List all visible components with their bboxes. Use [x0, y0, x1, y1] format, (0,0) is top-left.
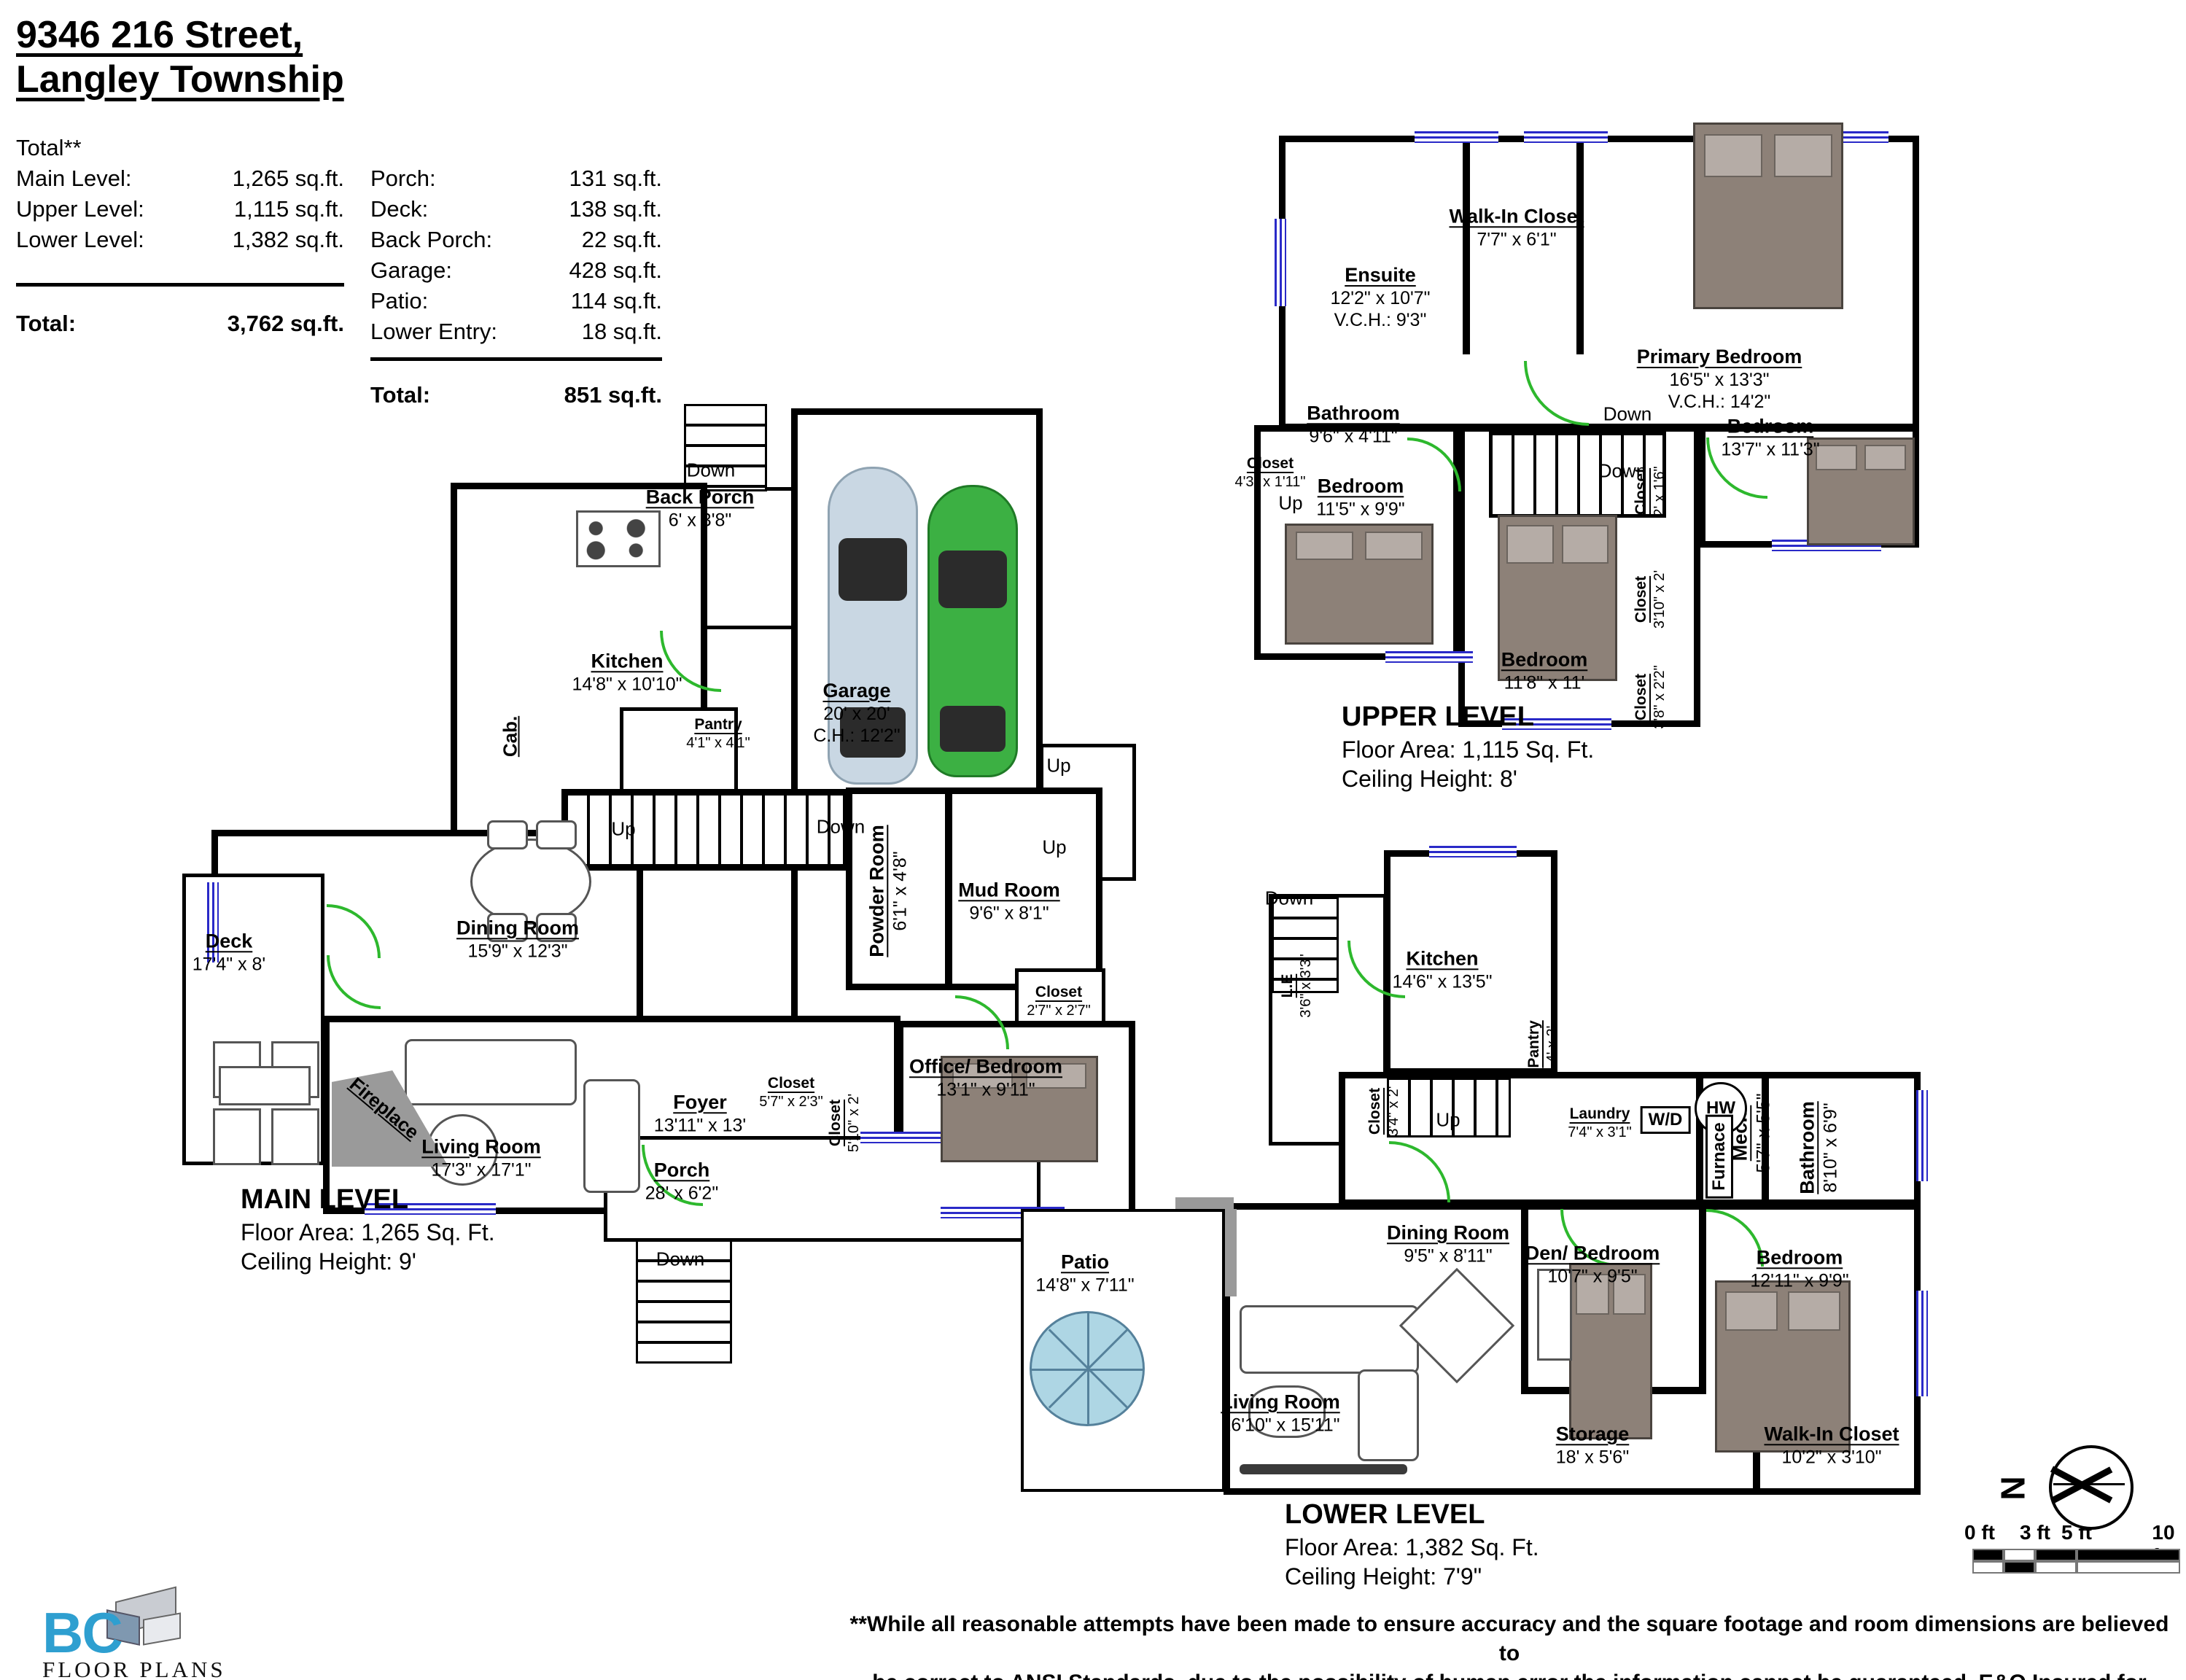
page-title: 9346 216 Street, Langley Township — [16, 13, 344, 103]
room-label-closet: Closet3'8" x 2'2" — [1632, 665, 1668, 728]
north-arrow-icon: N — [1999, 1445, 2152, 1529]
room-label-living-room: Living Room16'10" x 15'11" — [1221, 1390, 1340, 1436]
north-label: N — [1994, 1476, 2033, 1500]
room-label-patio: Patio14'8" x 7'11" — [1035, 1250, 1134, 1296]
area-total-row: Total:3,762 sq.ft. — [16, 308, 344, 339]
area-table-left: Total** Main Level:1,265 sq.ft. Upper Le… — [16, 133, 344, 339]
note-label-down: Down — [656, 1248, 704, 1271]
note-label-cab: Cab. — [499, 716, 522, 757]
area-row: Upper Level:1,115 sq.ft. — [16, 194, 344, 225]
sofa-icon — [1240, 1305, 1419, 1374]
room-label-kitchen: Kitchen14'6" x 13'5" — [1392, 946, 1492, 992]
room-label-bedroom: Bedroom12'11" x 9'9" — [1750, 1245, 1848, 1291]
note-label-up: Up — [1046, 755, 1070, 777]
tv-icon — [1240, 1464, 1407, 1474]
sofa-icon — [583, 1079, 640, 1193]
room-label-garage: Garage20' x 20'C.H.: 12'2" — [813, 679, 900, 747]
upper-level-caption: UPPER LEVEL Floor Area: 1,115 Sq. Ft. Ce… — [1342, 703, 1594, 790]
room-label-closet: Closet5'7" x 2'3" — [759, 1074, 822, 1111]
bed-icon — [1285, 524, 1434, 645]
sofa-icon — [405, 1039, 577, 1105]
room-label-dining-room: Dining Room9'5" x 8'11" — [1387, 1221, 1509, 1267]
area-row: Deck:138 sq.ft. — [370, 194, 662, 225]
window-icon — [1916, 1090, 1928, 1181]
area-row: Main Level:1,265 sq.ft. — [16, 163, 344, 194]
bed-icon — [1807, 437, 1915, 545]
room-label-ensuite: Ensuite12'2" x 10'7"V.C.H.: 9'3" — [1330, 263, 1430, 332]
room-label-closet: Closet3'4" x 2' — [1366, 1086, 1402, 1136]
room-label-storage: Storage18' x 5'6" — [1556, 1422, 1630, 1468]
main-stairs — [561, 789, 849, 871]
note-label-down: Down — [1265, 887, 1313, 910]
area-row: Patio:114 sq.ft. — [370, 286, 662, 316]
umbrella-table-icon — [1030, 1311, 1145, 1426]
room-label-living-room: Living Room17'3" x 17'1" — [421, 1135, 541, 1181]
note-label-down: Down — [687, 459, 735, 482]
disclaimer-line1: **While all reasonable attempts have bee… — [839, 1610, 2180, 1668]
divider — [16, 283, 344, 287]
room-label-closet: Closet3'10" x 2' — [1632, 570, 1668, 629]
room-label-office-bedroom: Office/ Bedroom13'1" x 9'11" — [909, 1054, 1062, 1100]
note-label-down: Down — [1603, 403, 1652, 426]
area-extras-total-row: Total:851 sq.ft. — [370, 380, 662, 411]
bed-icon — [1693, 122, 1843, 309]
room-label-closet: Closet5'10" x 2' — [826, 1094, 863, 1152]
window-icon — [1415, 131, 1498, 143]
area-row: Lower Level:1,382 sq.ft. — [16, 225, 344, 255]
room-label-dining-room: Dining Room15'9" x 12'3" — [456, 916, 579, 962]
address-line1: 9346 216 Street, — [16, 13, 344, 58]
lower-level-caption: LOWER LEVEL Floor Area: 1,382 Sq. Ft. Ce… — [1285, 1501, 1539, 1588]
sofa-icon — [1358, 1369, 1419, 1461]
main-level-caption: MAIN LEVEL Floor Area: 1,265 Sq. Ft. Cei… — [241, 1186, 495, 1273]
deck-chair-icon — [271, 1108, 319, 1165]
note-label-w-d: W/D — [1641, 1106, 1691, 1134]
chair-icon — [536, 820, 577, 849]
area-row: Porch:131 sq.ft. — [370, 163, 662, 194]
window-icon — [1429, 846, 1517, 857]
room-label-walk-in-closet: Walk-In Closet10'2" x 3'10" — [1764, 1422, 1899, 1468]
room-label-deck: Deck17'4" x 8' — [192, 929, 265, 975]
address-line2: Langley Township — [16, 58, 344, 102]
room-label-walk-in-closet: Walk-In Closet7'7" x 6'1" — [1449, 204, 1584, 250]
dining-table-icon — [470, 839, 591, 925]
note-label-down: Down — [1598, 460, 1646, 483]
wall-partition — [945, 787, 952, 990]
room-label-pantry: Pantry4' x 2' — [1525, 1020, 1561, 1067]
window-icon — [1916, 1291, 1928, 1396]
note-label-up: Up — [1436, 1109, 1460, 1132]
room-label-bedroom: Bedroom13'7" x 11'3" — [1721, 414, 1819, 460]
room-label-kitchen: Kitchen14'8" x 10'10" — [572, 649, 682, 695]
room-label-bathroom: Bathroom8'10" x 6'9" — [1795, 1101, 1841, 1194]
bed-icon — [1569, 1263, 1652, 1439]
room-label-bathroom: Bathroom9'6" x 4'11" — [1307, 401, 1400, 447]
area-row: Lower Entry:18 sq.ft. — [370, 316, 662, 347]
area-row: Garage:428 sq.ft. — [370, 255, 662, 286]
scale-bar-icon: 0 ft 3 ft 5 ft 10 ft — [1972, 1521, 2180, 1575]
chair-icon — [487, 820, 528, 849]
area-row: Back Porch:22 sq.ft. — [370, 225, 662, 255]
room-label-primary-bedroom: Primary Bedroom16'5" x 13'3"V.C.H.: 14'2… — [1637, 345, 1802, 413]
wall-partition — [1521, 1203, 1528, 1394]
room-label-foyer: Foyer13'11" x 13' — [654, 1090, 746, 1136]
room-label-mud-room: Mud Room9'6" x 8'1" — [958, 878, 1059, 924]
room-label-den-bedroom: Den/ Bedroom10'7" x 9'5" — [1525, 1241, 1660, 1287]
deck-table-icon — [219, 1066, 311, 1105]
floor-plan-sheet: 9346 216 Street, Langley Township Total*… — [0, 0, 2186, 1680]
disclaimer-line2: be correct to ANSI Standards, due to the… — [839, 1668, 2180, 1680]
retaining-wall — [1175, 1197, 1234, 1209]
divider — [370, 357, 662, 361]
window-icon — [1275, 219, 1286, 306]
note-label-up: Up — [1042, 836, 1066, 859]
room-label-closet: Closet4'3" x 1'11" — [1234, 454, 1305, 491]
wall-partition — [1699, 1203, 1706, 1394]
note-label-up: Up — [611, 818, 635, 841]
room-label-closet: Closet2'7" x 2'7" — [1027, 983, 1090, 1019]
room-label-laundry: Laundry7'4" x 3'1" — [1568, 1105, 1631, 1141]
window-icon — [1385, 651, 1473, 663]
total-note: Total** — [16, 133, 344, 163]
disclaimer: **While all reasonable attempts have bee… — [839, 1610, 2180, 1680]
retaining-wall — [1225, 1209, 1237, 1296]
room-label-bedroom: Bedroom11'8" x 11' — [1501, 647, 1588, 693]
room-label-powder-room: Powder Room6'1" x 4'8" — [865, 825, 911, 957]
deck-chair-icon — [213, 1108, 261, 1165]
note-label-up: Up — [1278, 492, 1302, 515]
note-label-furnace: Furnace — [1705, 1114, 1733, 1198]
window-icon — [1524, 131, 1608, 143]
room-label-porch: Porch28' x 6'2" — [645, 1158, 718, 1204]
room-label-bedroom: Bedroom11'5" x 9'9" — [1316, 474, 1404, 520]
room-label-back-porch: Back Porch6' x 3'8" — [646, 485, 755, 531]
car-icon — [927, 485, 1018, 777]
note-label-down: Down — [817, 816, 865, 839]
room-label-pantry: Pantry4'1" x 4'1" — [686, 715, 750, 752]
room-label-l-e: L.E3'6" x 3'3" — [1278, 954, 1315, 1017]
area-table-right: Porch:131 sq.ft. Deck:138 sq.ft. Back Po… — [370, 163, 662, 411]
logo-floorplans-text: FLOOR PLANS — [42, 1657, 226, 1680]
